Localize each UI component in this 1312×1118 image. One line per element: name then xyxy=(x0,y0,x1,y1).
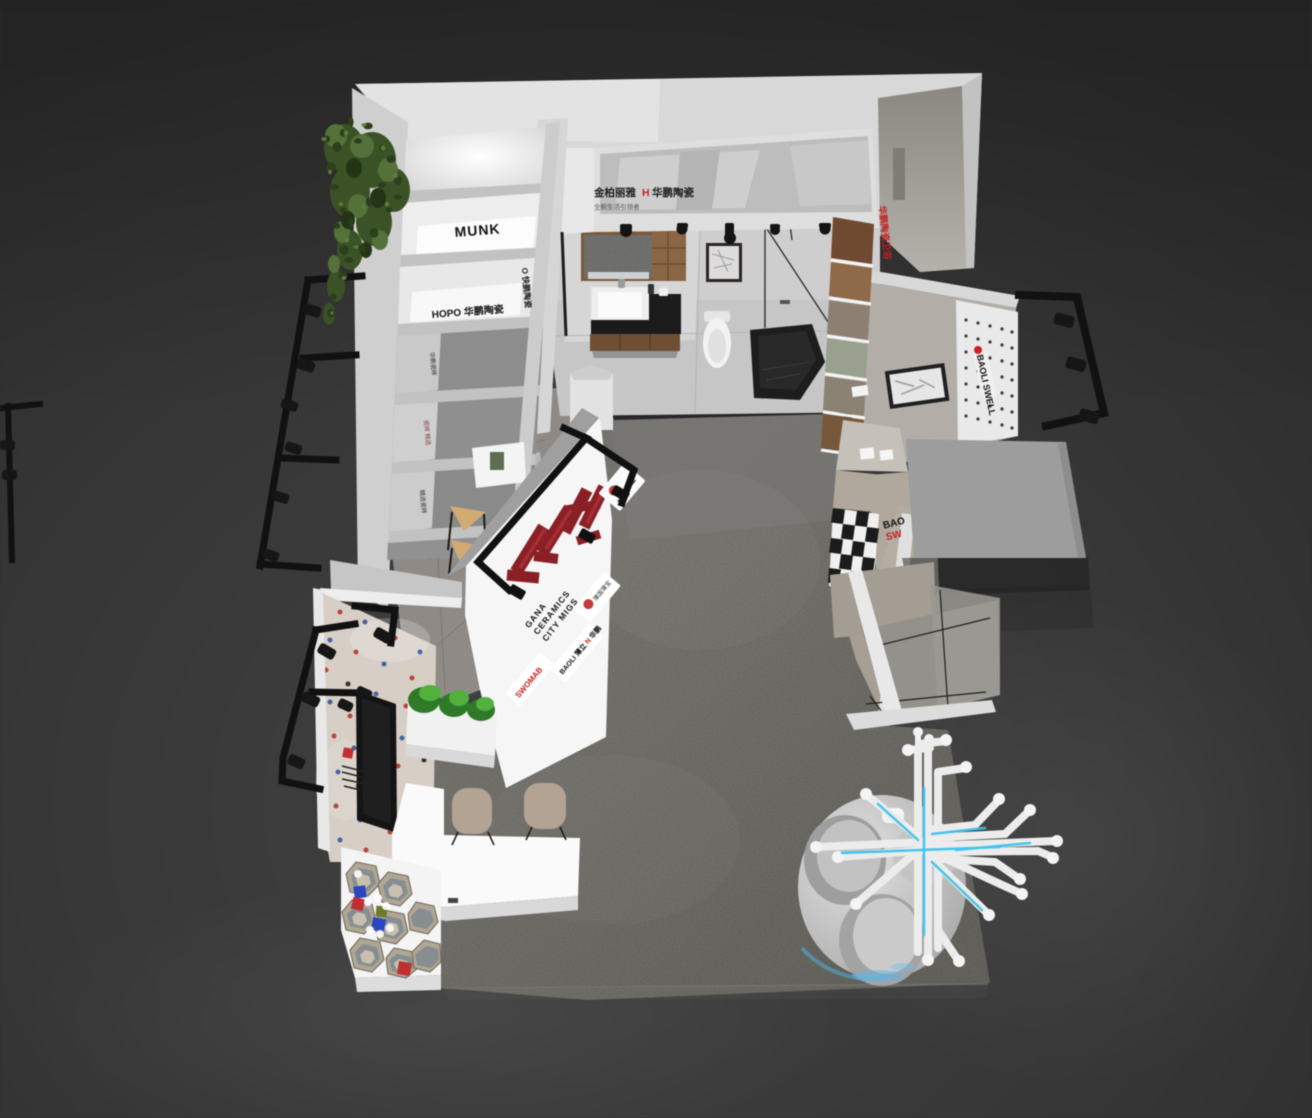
svg-text:华鹏陶瓷: 华鹏陶瓷 xyxy=(652,186,694,199)
svg-text:全橱生活引领者: 全橱生活引领者 xyxy=(594,202,640,211)
svg-text:H: H xyxy=(642,187,650,199)
svg-text:金柏丽雅: 金柏丽雅 xyxy=(593,186,636,199)
